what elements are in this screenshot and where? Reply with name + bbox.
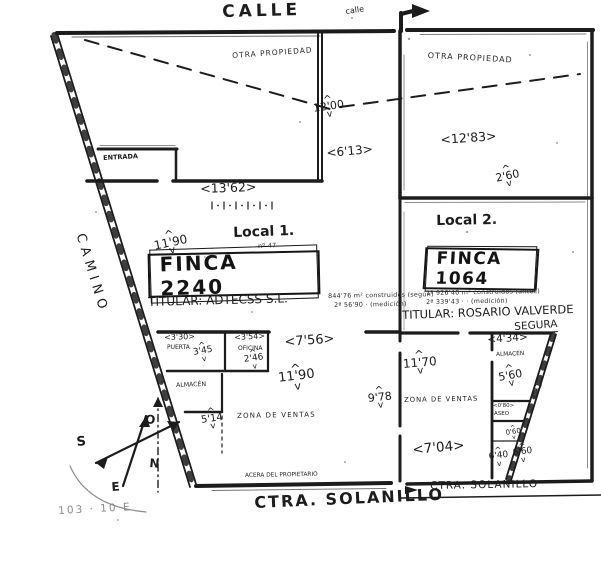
compass-o-label: O xyxy=(144,413,156,426)
dim-5-60: 5'60 xyxy=(497,365,524,391)
room-label-entrada: ENTRADA xyxy=(103,153,138,161)
finca-1064-box: FINCA 1064 xyxy=(423,247,540,291)
street-label-calle: CALLE xyxy=(222,2,301,21)
street-label-ctra-solanillo-right: CTRA. SOLANILLO xyxy=(430,479,538,491)
finca-2240-box: FINCA 2240 xyxy=(148,250,321,298)
room-label-almacen-local1: ALMACÉN xyxy=(176,382,206,389)
dim-3-45: 3'45 xyxy=(192,343,214,364)
floorplan-sketch: CALLE calle CAMINO OTRA PROPIEDAD OTRA P… xyxy=(0,0,601,572)
dim-7-56: <7'56> xyxy=(284,333,335,349)
dim-3-54: <3'54> xyxy=(234,332,265,342)
compass-e-label: E xyxy=(111,480,120,493)
dim-0-60: 0'60 xyxy=(505,426,522,442)
entrance-arrow-icon xyxy=(401,4,430,31)
dim-0-80: <0'80> xyxy=(493,404,514,410)
compass-icon xyxy=(70,397,179,512)
room-label-aseo: ASEO xyxy=(494,412,509,418)
dim-12-00: 12'00 xyxy=(312,96,346,122)
dim-2-46: 2'46 xyxy=(243,350,265,371)
compass-n-label: N xyxy=(149,457,160,470)
dim-3-30: <3'30> xyxy=(164,333,195,342)
dim-5-14: 5'14 xyxy=(200,409,224,432)
dim-6-40: 6'40 xyxy=(488,448,509,468)
local1-area-note-2: 2ª 56'90 · (medición) xyxy=(334,302,407,310)
scale-bar-icon xyxy=(212,202,272,209)
local1-titular: TITULAR: ADTECSS S.L. xyxy=(148,292,288,308)
dim-11-90-lower: 11'90 xyxy=(277,364,317,394)
local1-interior-walls xyxy=(87,33,400,453)
room-label-zona-ventas-local1: ZONA DE VENTAS xyxy=(237,412,316,420)
dim-6-60: 6'60 xyxy=(512,444,533,464)
room-label-zona-ventas-local2: ZONA DE VENTAS xyxy=(404,396,478,404)
dim-4-34: <4'34> xyxy=(487,332,528,345)
room-label-puerta: PUERTA xyxy=(167,345,190,351)
dim-13-62: <13'62> xyxy=(200,181,257,195)
dim-11-70: 11'70 xyxy=(402,351,438,378)
dim-9-78: 9'78 xyxy=(367,387,393,411)
compass-s-label: S xyxy=(76,435,87,449)
local1-title: Local 1. xyxy=(233,224,294,240)
local2-title: Local 2. xyxy=(436,213,497,228)
room-label-almacen-local2: ALMACÉN xyxy=(496,352,524,359)
finca-1064-label: FINCA 1064 xyxy=(425,246,538,293)
